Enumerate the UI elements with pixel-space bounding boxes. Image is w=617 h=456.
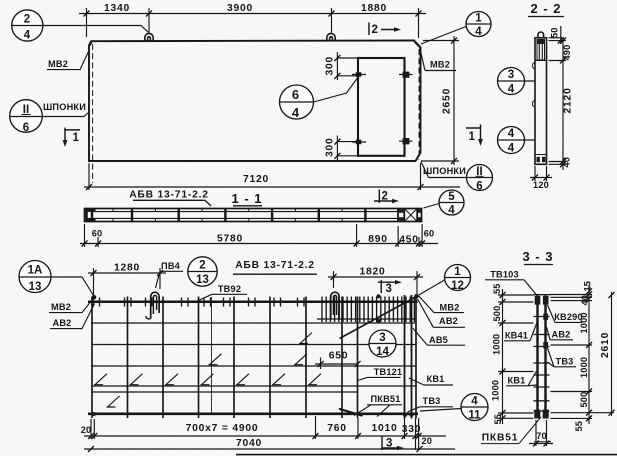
svg-text:11: 11 [468, 410, 481, 422]
svg-text:3 - 3: 3 - 3 [522, 249, 553, 264]
svg-text:760: 760 [327, 423, 347, 434]
svg-text:890: 890 [368, 234, 388, 245]
svg-text:ПКВ51: ПКВ51 [370, 394, 400, 404]
svg-text:4: 4 [508, 84, 515, 96]
svg-text:4: 4 [475, 26, 482, 38]
svg-text:500: 500 [492, 306, 502, 322]
svg-text:ШПОНКИ: ШПОНКИ [423, 166, 466, 176]
svg-text:3: 3 [508, 69, 514, 81]
svg-text:4: 4 [508, 143, 515, 155]
svg-text:ШПОНКИ: ШПОНКИ [43, 102, 86, 112]
svg-text:6: 6 [292, 87, 300, 102]
svg-text:330: 330 [402, 424, 422, 435]
svg-text:40: 40 [580, 295, 590, 306]
svg-text:2: 2 [24, 14, 30, 26]
svg-text:55: 55 [574, 421, 584, 432]
svg-text:1000: 1000 [492, 334, 502, 355]
svg-text:450: 450 [399, 235, 419, 246]
svg-text:3: 3 [386, 438, 392, 450]
svg-text:13: 13 [29, 281, 42, 293]
svg-text:4: 4 [448, 205, 455, 217]
svg-text:ТВ92: ТВ92 [218, 284, 241, 294]
svg-text:МВ2: МВ2 [430, 60, 450, 70]
svg-text:13: 13 [196, 274, 209, 286]
svg-text:1: 1 [454, 266, 461, 278]
svg-text:60: 60 [92, 229, 103, 239]
svg-text:700х7 = 4900: 700х7 = 4900 [186, 423, 259, 434]
svg-text:4: 4 [292, 105, 300, 120]
svg-text:1820: 1820 [359, 267, 385, 278]
svg-text:МВ2: МВ2 [440, 303, 460, 313]
svg-text:2: 2 [382, 191, 388, 203]
svg-text:120: 120 [533, 180, 549, 190]
svg-text:АВ2: АВ2 [53, 318, 72, 328]
svg-text:5780: 5780 [217, 234, 243, 245]
svg-text:7040: 7040 [236, 438, 262, 449]
svg-text:АБВ 13-71-2.2: АБВ 13-71-2.2 [129, 190, 209, 201]
svg-text:4: 4 [471, 396, 478, 408]
svg-text:500: 500 [579, 392, 589, 408]
svg-text:1340: 1340 [104, 3, 130, 14]
svg-text:ПКВ51: ПКВ51 [482, 433, 519, 444]
svg-text:2 - 2: 2 - 2 [530, 1, 561, 16]
svg-text:АВ5: АВ5 [429, 335, 448, 345]
svg-text:ТВ3: ТВ3 [556, 357, 574, 367]
svg-text:5: 5 [448, 191, 455, 203]
svg-text:ПВ4: ПВ4 [161, 261, 181, 271]
svg-text:20: 20 [422, 436, 433, 446]
svg-text:7120: 7120 [243, 174, 269, 185]
svg-text:4: 4 [24, 30, 31, 42]
svg-text:1А: 1А [28, 265, 43, 277]
svg-text:20: 20 [81, 425, 92, 435]
svg-text:70: 70 [536, 431, 547, 441]
svg-text:КВ1: КВ1 [427, 374, 445, 384]
svg-text:6: 6 [476, 181, 482, 193]
svg-text:ТВ3: ТВ3 [423, 396, 441, 406]
svg-text:300: 300 [325, 137, 336, 157]
svg-text:2650: 2650 [442, 88, 453, 114]
svg-text:АВ2: АВ2 [439, 316, 458, 326]
svg-text:МВ2: МВ2 [51, 302, 71, 312]
svg-text:1000: 1000 [491, 380, 501, 401]
svg-text:3: 3 [386, 283, 392, 295]
svg-text:2610: 2610 [600, 332, 611, 358]
svg-text:650: 650 [329, 351, 349, 362]
svg-text:ТВ103: ТВ103 [490, 270, 519, 280]
svg-text:1280: 1280 [114, 263, 140, 274]
svg-text:1000: 1000 [579, 357, 589, 378]
svg-text:1: 1 [73, 132, 80, 144]
svg-text:АВ2: АВ2 [552, 330, 571, 340]
svg-text:2120: 2120 [563, 87, 574, 113]
svg-text:МВ2: МВ2 [48, 59, 68, 69]
svg-text:1: 1 [475, 13, 482, 25]
svg-text:15: 15 [583, 281, 593, 292]
svg-text:ТВ121: ТВ121 [374, 367, 403, 377]
svg-text:КВ41: КВ41 [505, 331, 528, 341]
svg-text:6: 6 [23, 122, 29, 134]
svg-text:55: 55 [492, 283, 502, 294]
svg-text:КВ1: КВ1 [508, 376, 526, 386]
svg-text:55: 55 [493, 414, 503, 425]
svg-text:1880: 1880 [361, 3, 387, 14]
svg-text:60: 60 [424, 229, 435, 239]
svg-text:2: 2 [372, 24, 378, 36]
svg-text:4: 4 [508, 128, 515, 140]
svg-text:1000: 1000 [579, 312, 589, 333]
svg-text:300: 300 [325, 56, 336, 76]
svg-text:2: 2 [199, 260, 205, 272]
svg-text:50: 50 [550, 27, 560, 38]
svg-text:14: 14 [376, 346, 389, 358]
svg-text:490: 490 [562, 45, 572, 61]
svg-text:3900: 3900 [227, 3, 253, 14]
svg-text:1 - 1: 1 - 1 [231, 191, 262, 206]
svg-text:АБВ 13-71-2.2: АБВ 13-71-2.2 [235, 260, 315, 271]
svg-text:1010: 1010 [371, 423, 397, 434]
svg-text:40: 40 [562, 157, 572, 168]
svg-text:12: 12 [451, 280, 464, 292]
svg-text:1: 1 [469, 131, 476, 143]
svg-text:3: 3 [379, 332, 385, 344]
